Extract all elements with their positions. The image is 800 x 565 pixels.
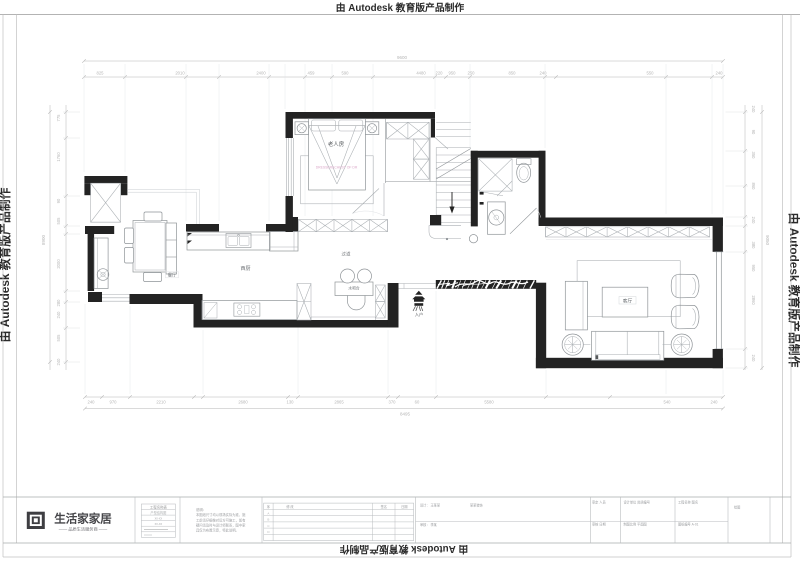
svg-text:850: 850: [509, 71, 517, 76]
svg-text:2860: 2860: [751, 295, 756, 305]
svg-text:由 Autodesk 教育版产品制作: 由 Autodesk 教育版产品制作: [787, 213, 800, 368]
svg-text:590: 590: [342, 71, 350, 76]
svg-text:审定 人员: 审定 人员: [592, 500, 606, 505]
svg-text:设计单位 资质编号: 设计单位 资质编号: [624, 500, 650, 505]
svg-text:220: 220: [436, 71, 444, 76]
svg-text:8900: 8900: [41, 234, 46, 245]
svg-text:由 Autodesk 教育版产品制作: 由 Autodesk 教育版产品制作: [0, 187, 12, 342]
svg-text:825: 825: [97, 71, 105, 76]
svg-text:过道: 过道: [342, 251, 351, 258]
svg-text:860: 860: [751, 183, 756, 191]
svg-text:设计： 王某某: 设计： 王某某: [420, 503, 441, 508]
svg-text:B: B: [267, 518, 269, 522]
svg-text:9050: 9050: [765, 235, 770, 246]
svg-text:240: 240: [711, 400, 719, 405]
svg-text:4480: 4480: [416, 71, 426, 76]
svg-text:380: 380: [751, 242, 756, 250]
svg-text:入户: 入户: [415, 311, 423, 318]
svg-text:xx-xx: xx-xx: [155, 522, 163, 526]
svg-text:2400: 2400: [256, 71, 266, 76]
svg-text:老人房: 老人房: [328, 140, 344, 148]
svg-text:2865: 2865: [334, 400, 344, 405]
svg-text:工前请仔细核对后方可施工，如有: 工前请仔细核对后方可施工，如有: [196, 517, 246, 522]
svg-text:2210: 2210: [156, 400, 166, 405]
svg-text:370: 370: [389, 400, 397, 405]
svg-text:具仅为布置示意，特此说明。: 具仅为布置示意，特此说明。: [196, 528, 239, 533]
svg-text:90: 90: [56, 198, 61, 203]
svg-text:240: 240: [751, 217, 756, 225]
svg-text:1760: 1760: [56, 152, 61, 162]
svg-text:—— 品质生活服务商 ——: —— 品质生活服务商 ——: [59, 526, 108, 533]
svg-text:客厅: 客厅: [623, 298, 633, 305]
svg-text:505: 505: [56, 217, 61, 225]
svg-text:2680: 2680: [238, 400, 248, 405]
svg-text:240: 240: [88, 400, 96, 405]
svg-text:疑问请及时与设计师联系，图中家: 疑问请及时与设计师联系，图中家: [196, 522, 246, 527]
svg-text:本图纸尺寸均以现场实际为准，施: 本图纸尺寸均以现场实际为准，施: [196, 512, 246, 517]
svg-text:9600: 9600: [397, 55, 408, 60]
svg-text:2000: 2000: [56, 259, 61, 269]
svg-text:5580: 5580: [484, 400, 494, 405]
svg-text:250: 250: [468, 71, 476, 76]
svg-text:签名: 签名: [381, 504, 387, 509]
svg-text:8495: 8495: [400, 412, 411, 417]
svg-text:由 Autodesk 教育版产品制作: 由 Autodesk 教育版产品制作: [340, 543, 469, 556]
svg-text:90: 90: [751, 130, 756, 135]
svg-text:240: 240: [540, 71, 548, 76]
svg-text:540: 540: [664, 400, 672, 405]
svg-text:说明：: 说明：: [196, 507, 206, 512]
svg-text:280: 280: [56, 299, 61, 307]
svg-text:350: 350: [751, 152, 756, 160]
svg-text:130: 130: [287, 400, 295, 405]
svg-text:240: 240: [716, 71, 724, 76]
svg-text:户型结构图: 户型结构图: [150, 510, 166, 515]
svg-text:餐厅: 餐厅: [168, 272, 177, 279]
svg-text:240: 240: [751, 106, 756, 114]
svg-text:240: 240: [56, 311, 61, 319]
svg-text:775: 775: [56, 114, 61, 122]
svg-text:240: 240: [751, 355, 756, 363]
svg-text:修 改: 修 改: [286, 504, 294, 509]
svg-text:水吧台: 水吧台: [348, 285, 360, 290]
svg-text:459: 459: [308, 71, 316, 76]
svg-text:60: 60: [415, 400, 420, 405]
svg-text:550: 550: [647, 71, 655, 76]
svg-text:日期: 日期: [401, 504, 407, 509]
svg-text:240: 240: [56, 358, 61, 366]
svg-text:生活家家居: 生活家家居: [54, 512, 112, 526]
svg-text:xx·xx: xx·xx: [155, 516, 163, 520]
svg-text:图纸编号 A-01: 图纸编号 A-01: [678, 522, 699, 527]
svg-text:由 Autodesk 教育版产品制作: 由 Autodesk 教育版产品制作: [336, 1, 465, 14]
svg-text:绘图: 绘图: [734, 505, 740, 510]
svg-text:工程名称表: 工程名称表: [150, 504, 168, 509]
svg-text:2010: 2010: [175, 71, 185, 76]
svg-text:970: 970: [110, 400, 118, 405]
svg-text:A: A: [267, 511, 269, 515]
svg-text:505: 505: [56, 334, 61, 342]
svg-text:制图比例 平面图: 制图比例 平面图: [624, 522, 647, 527]
svg-text:950: 950: [751, 265, 756, 273]
svg-text:审核 日期: 审核 日期: [592, 522, 606, 527]
svg-text:工程名称 图名: 工程名称 图名: [678, 500, 698, 505]
svg-text:950: 950: [449, 71, 457, 76]
svg-text:DRESSER&CHEST OF DR: DRESSER&CHEST OF DR: [316, 165, 358, 169]
svg-text:西厨: 西厨: [240, 266, 250, 272]
svg-text:审核： 李某: 审核： 李某: [420, 522, 438, 527]
svg-text:某某装饰: 某某装饰: [470, 503, 483, 508]
